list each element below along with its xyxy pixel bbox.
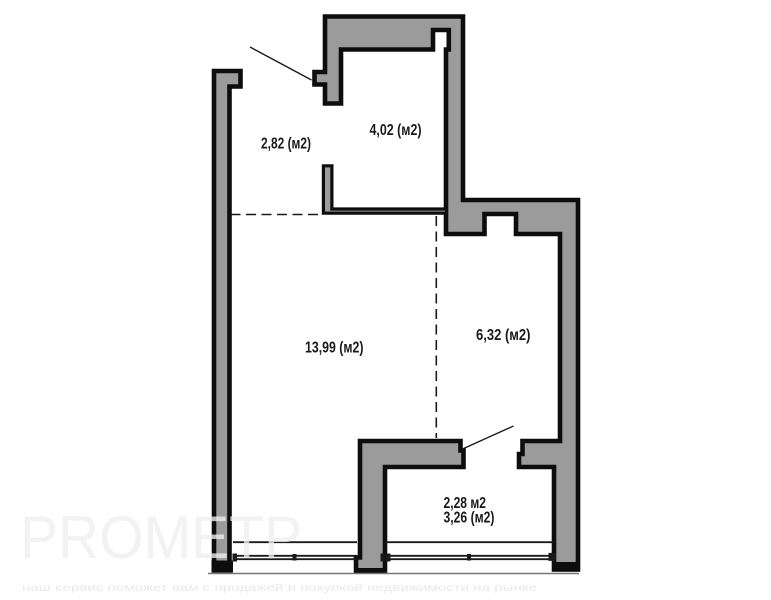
svg-text:6,32 (м2): 6,32 (м2) [476,327,531,344]
svg-text:PROMETP: PROMETP [20,504,302,571]
svg-text:наш сервис поможет вам с прода: наш сервис поможет вам с продажей и поку… [22,583,538,594]
svg-text:4,02 (м2): 4,02 (м2) [370,122,422,139]
svg-text:13,99 (м2): 13,99 (м2) [305,340,364,357]
svg-text:2,82 (м2): 2,82 (м2) [261,136,311,153]
svg-text:3,26 (м2): 3,26 (м2) [444,510,495,527]
